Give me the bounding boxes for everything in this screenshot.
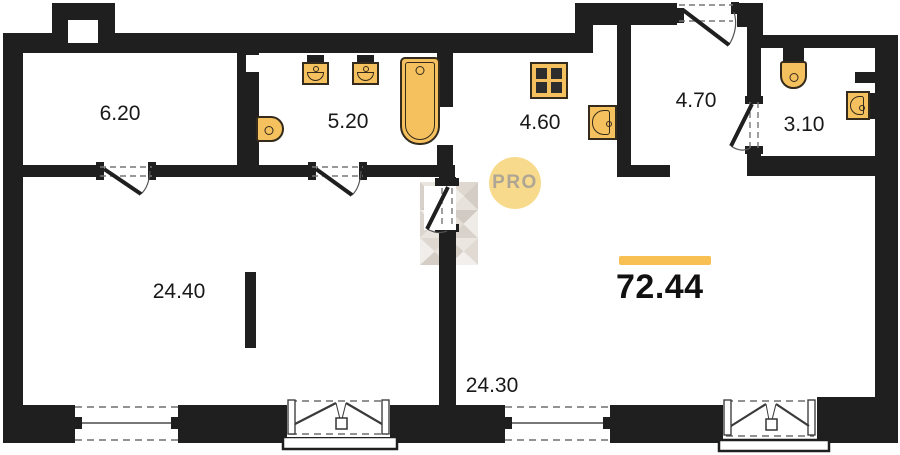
stove-burner — [551, 82, 562, 93]
door-jamb — [308, 162, 316, 180]
basin-faucet — [313, 66, 319, 72]
room-area-label: 4.60 — [490, 111, 590, 135]
door-jamb — [96, 162, 104, 180]
room-area-label: 4.70 — [646, 89, 746, 113]
door-jamb — [745, 96, 763, 104]
wall — [437, 145, 453, 177]
door — [312, 167, 363, 195]
wall — [593, 3, 677, 25]
pro-watermark-text: PRO — [492, 172, 538, 194]
wall — [617, 165, 670, 177]
window — [75, 407, 178, 440]
wall — [152, 165, 312, 177]
toilet-bowl — [265, 126, 274, 135]
wall — [575, 3, 593, 53]
total-area-accent-bar — [619, 256, 711, 265]
wall — [747, 156, 875, 176]
wall-niche — [246, 55, 262, 72]
door-jamb — [731, 2, 739, 14]
wall — [610, 405, 723, 443]
wall — [875, 35, 898, 410]
wall-stub — [855, 72, 875, 83]
wall-niche — [68, 20, 98, 43]
entrance-door — [679, 5, 736, 45]
stove-burner — [536, 82, 547, 93]
pro-watermark-badge: PRO — [489, 157, 541, 209]
balcony-door — [719, 399, 829, 451]
door — [100, 167, 152, 194]
washbasin — [352, 62, 379, 85]
room-area-label: 5.20 — [298, 110, 398, 134]
toilet — [256, 116, 284, 142]
window — [505, 407, 610, 440]
stove — [530, 62, 568, 99]
room-area-label: 24.40 — [119, 280, 239, 304]
wall — [3, 33, 23, 443]
bathtub — [400, 57, 440, 145]
basin-bowl — [357, 72, 374, 81]
wall — [23, 165, 100, 177]
sink-faucet — [606, 121, 612, 127]
washbasin — [302, 62, 329, 85]
basin-bowl — [307, 72, 324, 81]
wall — [617, 23, 631, 167]
toilet — [780, 61, 807, 89]
room-area-label: 6.20 — [70, 102, 170, 126]
bathtub-drain — [416, 66, 425, 75]
door-jamb — [676, 8, 684, 23]
door-jamb — [435, 178, 459, 186]
balcony-door — [283, 399, 397, 449]
kitchen-sink — [588, 105, 617, 140]
wall — [3, 405, 75, 443]
door-jamb — [359, 162, 367, 180]
room-area-label: 24.30 — [432, 374, 552, 398]
room-area-label: 3.10 — [754, 113, 854, 137]
partition-column — [245, 272, 256, 348]
wall — [747, 23, 761, 100]
stove-burner — [536, 68, 547, 79]
total-area-value: 72.44 — [616, 268, 704, 307]
basin-faucet — [363, 66, 369, 72]
wall — [178, 405, 287, 443]
stove-burner — [551, 68, 562, 79]
basin-faucet — [859, 105, 865, 111]
toilet-bowl — [789, 73, 798, 82]
floor-plan: 6.20 5.20 4.60 4.70 3.10 24.40 24.30 72.… — [0, 0, 900, 455]
door-jamb — [148, 162, 156, 180]
wall — [390, 405, 505, 443]
